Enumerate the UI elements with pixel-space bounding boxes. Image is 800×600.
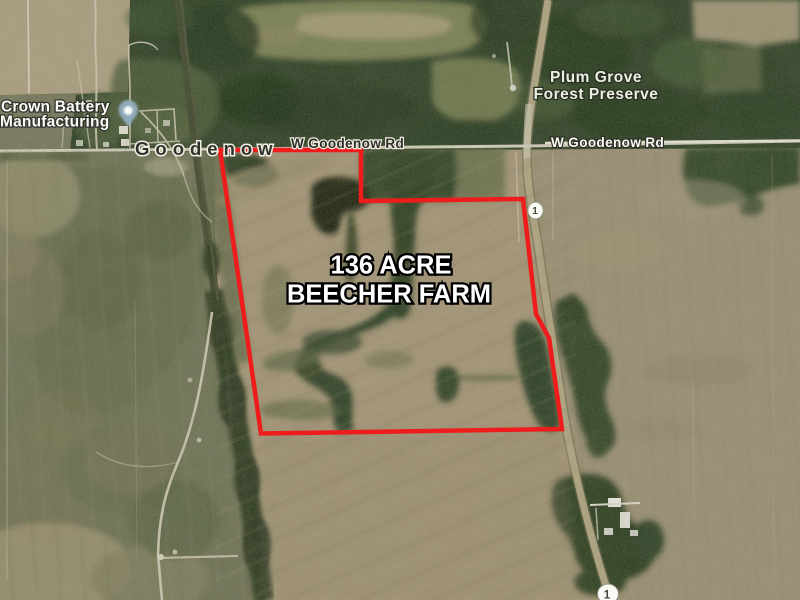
svg-text:1: 1: [532, 206, 538, 217]
svg-text:W Goodenow Rd: W Goodenow Rd: [291, 136, 404, 151]
svg-text:Goodenow: Goodenow: [135, 138, 279, 159]
svg-text:Forest Preserve: Forest Preserve: [534, 86, 659, 103]
svg-text:Manufacturing: Manufacturing: [0, 114, 109, 131]
svg-text:Plum Grove: Plum Grove: [550, 69, 642, 86]
svg-text:136 ACRE: 136 ACRE: [331, 252, 452, 280]
svg-text:BEECHER FARM: BEECHER FARM: [287, 281, 491, 309]
svg-text:1: 1: [604, 590, 611, 600]
svg-text:W Goodenow Rd: W Goodenow Rd: [551, 135, 664, 150]
